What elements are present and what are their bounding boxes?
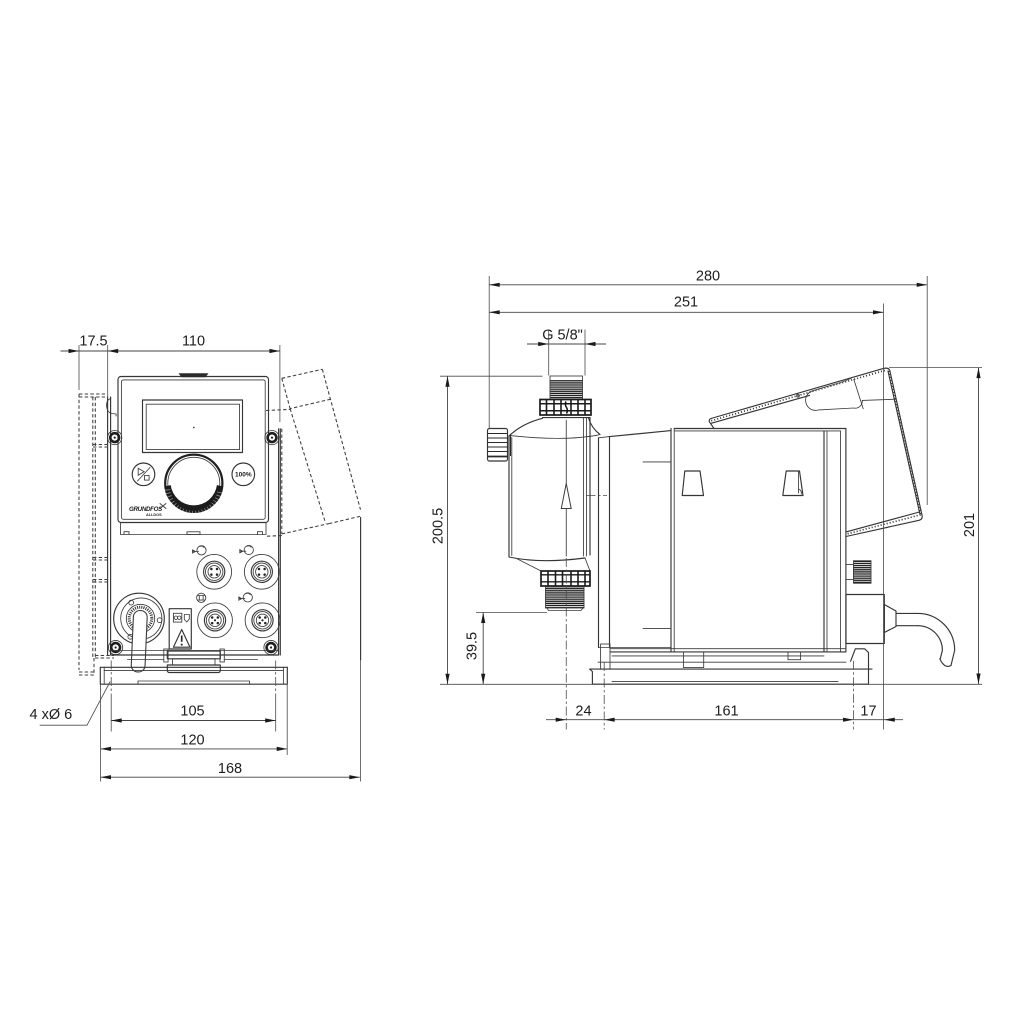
- svg-text:ALLDOS: ALLDOS: [146, 513, 162, 517]
- svg-text:120: 120: [180, 733, 204, 749]
- svg-text:251: 251: [674, 295, 698, 311]
- svg-text:168: 168: [218, 761, 242, 777]
- svg-text:200.5: 200.5: [431, 508, 447, 544]
- svg-text:100%: 100%: [235, 472, 252, 479]
- svg-text:GRUNDFOS: GRUNDFOS: [129, 506, 163, 513]
- svg-text:280: 280: [696, 269, 720, 285]
- svg-text:4 xØ 6: 4 xØ 6: [30, 707, 73, 723]
- svg-text:17: 17: [860, 704, 876, 720]
- svg-text:G 5/8": G 5/8": [542, 328, 583, 344]
- svg-text:110: 110: [182, 334, 205, 350]
- svg-text:17.5: 17.5: [79, 334, 107, 350]
- svg-text:24: 24: [575, 704, 591, 720]
- svg-text:201: 201: [962, 513, 978, 537]
- svg-text:39.5: 39.5: [465, 632, 481, 660]
- svg-text:161: 161: [714, 704, 738, 720]
- svg-text:105: 105: [180, 704, 204, 720]
